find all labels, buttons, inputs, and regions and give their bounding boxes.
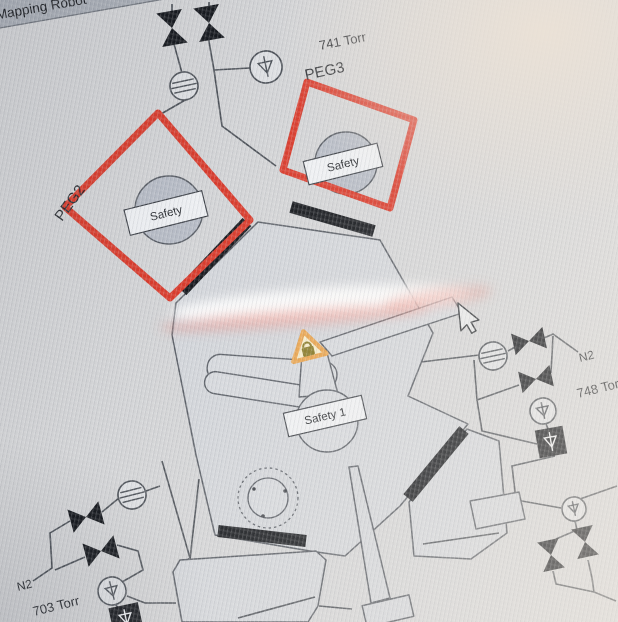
reading-741-torr: 741 Torr — [318, 29, 368, 53]
pipe — [174, 44, 182, 73]
gauge-left[interactable] — [115, 478, 149, 512]
control-software-screen: Mapping Robot — [0, 0, 618, 622]
pipe — [319, 606, 352, 609]
gate-valve-peg3[interactable] — [291, 207, 374, 231]
pipe — [55, 557, 85, 570]
pipe — [33, 521, 70, 581]
n2-label-right: N2 — [577, 348, 596, 365]
reading-703-torr: 703 Torr — [31, 593, 81, 619]
reading-748-torr: 748 Torr — [575, 375, 618, 401]
vacuum-system-schematic: Mapping Robot — [0, 0, 618, 622]
pipe — [117, 545, 143, 582]
pipe — [146, 486, 160, 491]
pipe — [162, 461, 190, 566]
gauge-741-torr[interactable] — [247, 48, 285, 86]
n2-label-left: N2 — [15, 577, 34, 594]
peg3-label: PEG3 — [303, 59, 346, 84]
pipe — [102, 498, 119, 512]
gauge-703-torr[interactable] — [95, 574, 129, 608]
pipe — [588, 560, 594, 592]
mouse-cursor-icon — [458, 301, 480, 334]
gauge-bottom-right[interactable] — [560, 495, 588, 523]
valve-top-1[interactable] — [156, 9, 188, 47]
valve-n2-left-2[interactable] — [82, 535, 119, 566]
iso-valve-right[interactable] — [535, 426, 567, 458]
peg2-label: PEG2 — [51, 182, 88, 224]
pipe — [544, 334, 578, 352]
gauge-748-torr[interactable] — [528, 396, 559, 427]
pipe — [508, 347, 515, 351]
valve-top-2[interactable] — [193, 4, 225, 42]
loadlock-bottom-center[interactable] — [173, 551, 326, 622]
pipe — [214, 68, 250, 70]
pipe — [553, 571, 616, 601]
pipe — [161, 99, 187, 114]
valve-n2-right-2[interactable] — [518, 365, 554, 393]
gauge-top-left[interactable] — [167, 69, 200, 102]
pipe — [551, 336, 553, 373]
window-titlebar: Mapping Robot — [0, 0, 168, 33]
pipe — [421, 355, 479, 362]
gauge-right-upper[interactable] — [476, 339, 509, 372]
valve-n2-right-1[interactable] — [511, 327, 547, 355]
valve-bottom-right-1[interactable] — [537, 538, 565, 572]
valve-n2-left-1[interactable] — [67, 501, 104, 532]
chamber-peg3[interactable]: Safety — [283, 82, 414, 208]
pipe — [580, 486, 617, 499]
pipe — [127, 596, 176, 603]
valve-bottom-right-2[interactable] — [571, 525, 599, 559]
